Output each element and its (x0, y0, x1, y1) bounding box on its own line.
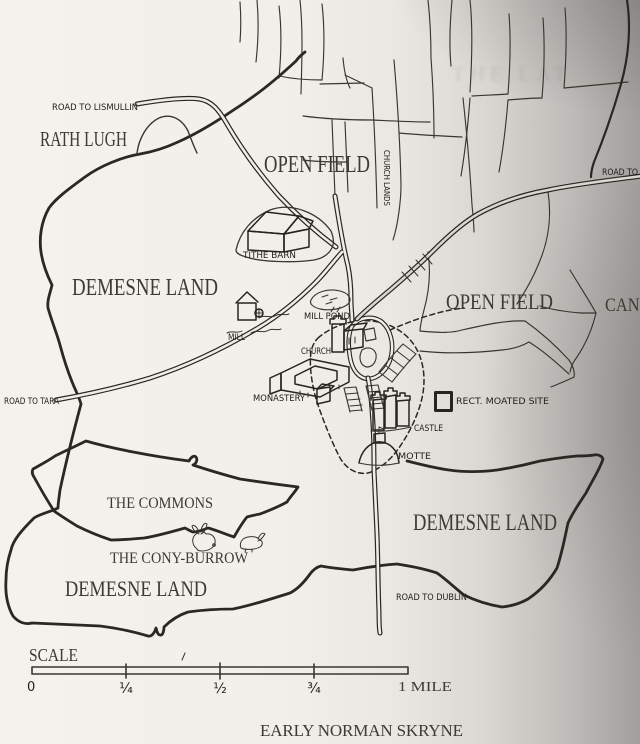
mill-building (236, 292, 263, 320)
label-motte: MOTTE (398, 452, 431, 462)
label-open-field-east: OPEN FIELD (446, 289, 553, 314)
moated-site-symbol (436, 393, 452, 411)
label-road-to-dublin: ROAD TO DUBLIN (396, 593, 467, 603)
scale-three-quarter: ¾ (307, 681, 321, 697)
scale-mile: 1 MILE (398, 680, 452, 695)
label-demesne-southeast: DEMESNE LAND (413, 510, 557, 535)
scale-zero: 0 (27, 680, 35, 695)
label-church-lands: CHURCH LANDS (382, 150, 391, 206)
label-the-cony-burrow: THE CONY-BURROW (110, 550, 249, 567)
label-tithe-barn: TITHE BARN (242, 251, 296, 261)
map-svg: RATH LUGH OPEN FIELD DEMESNE LAND OPEN F… (0, 0, 640, 744)
scale-bar: SCALE 0 ¼ ½ ¾ 1 MILE (27, 645, 452, 697)
label-demesne-west: DEMESNE LAND (72, 275, 218, 301)
scanned-map-page: THE LAT (0, 0, 640, 744)
label-castle: CASTLE (414, 424, 443, 434)
scale-quarter: ¼ (119, 681, 133, 697)
castle-building (371, 388, 411, 431)
label-church: CHURCH (301, 347, 331, 357)
label-mill: MILL (228, 333, 245, 343)
label-monastery: MONASTERY (253, 394, 305, 404)
buildings (192, 212, 452, 552)
label-rect-moated-site: RECT. MOATED SITE (456, 397, 549, 407)
scale-half: ½ (213, 681, 227, 697)
tithe-barn-building (248, 212, 313, 252)
label-demesne-southwest: DEMESNE LAND (65, 576, 207, 601)
label-the-commons: THE COMMONS (107, 495, 213, 512)
label-road-to-tara: ROAD TO TARA (4, 397, 60, 407)
scale-title: SCALE (29, 645, 78, 665)
mill-pond-shape (310, 290, 350, 312)
commons-boundary (32, 441, 298, 540)
label-open-field-north: OPEN FIELD (264, 152, 370, 178)
rabbit-icon (192, 523, 215, 551)
page-rule (0, 700, 640, 703)
label-road-to-east: ROAD TO (602, 168, 638, 178)
label-mill-pond: MILL POND (304, 312, 350, 322)
label-cani: CANI (605, 295, 640, 316)
label-rath-lugh: RATH LUGH (40, 127, 127, 151)
label-road-to-lismullin: ROAD TO LISMULLIN (52, 103, 138, 113)
page-caption: EARLY NORMAN SKRYNE (260, 721, 463, 740)
motte-mound (359, 427, 399, 465)
